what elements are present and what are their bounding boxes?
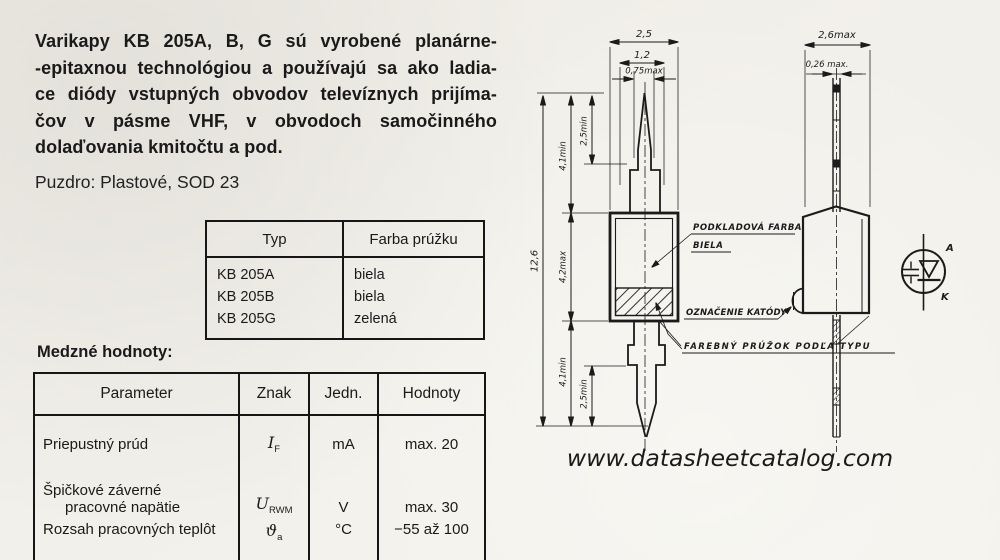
base-color-label-line1: PODKLADOVÁ FARBA: [693, 221, 802, 233]
dim-side-width-label: 2,6max: [818, 30, 856, 41]
table-row: Špičkové záverné pracovné napätie URWM V…: [34, 467, 485, 519]
anode-label: A: [945, 243, 954, 254]
type-table-header-typ: Typ: [206, 221, 343, 257]
limits-table: Parameter Znak Jedn. Hodnoty Priepustný …: [33, 372, 486, 560]
symbol-base: ϑ: [266, 521, 277, 540]
limits-title: Medzné hodnoty:: [37, 343, 173, 362]
front-view: 2,5 1,2 0,75max 12,6 4,1min 2,5min 4,2ma…: [530, 29, 679, 452]
color-cell: biela: [343, 257, 484, 286]
dim-side-lead-label: 0,26 max.: [806, 60, 849, 70]
parameter-cell: Priepustný prúd: [34, 415, 239, 467]
symbol-sub: F: [274, 444, 280, 455]
dim-body-width-label: 2,5: [636, 29, 652, 40]
type-cell: KB 205B: [206, 286, 343, 308]
value-cell: max. 30: [378, 467, 485, 519]
type-cell: KB 205G: [206, 308, 343, 339]
cathode-label: K: [941, 292, 950, 303]
dim-top-tip-label: 2,5min: [580, 116, 590, 146]
limits-header-parameter: Parameter: [34, 373, 239, 415]
table-row: Priepustný prúd IF mA max. 20: [34, 415, 485, 467]
intro-line: dolaďovania kmitočtu a pod.: [35, 134, 497, 161]
callouts: PODKLADOVÁ FARBA BIELA OZNAČENIE KATÓDY …: [652, 221, 895, 353]
intro-line: čov v pásme VHF, v obvodoch samočinného: [35, 108, 497, 135]
intro-line: Varikapy KB 205A, B, G sú vyrobené planá…: [35, 28, 497, 55]
table-row: KB 205G zelená: [206, 308, 484, 339]
symbol-base: U: [255, 494, 268, 513]
parameter-cell: Rozsah pracovných teplôt: [34, 519, 239, 560]
limits-header-znak: Znak: [239, 373, 309, 415]
intro-paragraph: Varikapy KB 205A, B, G sú vyrobené planá…: [35, 28, 497, 161]
limits-header-hodnoty: Hodnoty: [378, 373, 485, 415]
symbol-cell: URWM: [239, 467, 309, 519]
dim-top-lead-label: 4,1min: [559, 141, 569, 171]
symbol-cell: ϑa: [239, 519, 309, 560]
dim-collar-width-label: 1,2: [634, 50, 650, 61]
stripe-leader-right: [836, 316, 869, 345]
base-color-leader: [652, 234, 691, 267]
table-row: KB 205B biela: [206, 286, 484, 308]
stripe-label: FAREBNÝ PRÚŽOK PODĽA TYPU: [684, 340, 871, 352]
table-row: Rozsah pracovných teplôt ϑa °C −55 až 10…: [34, 519, 485, 560]
front-bottom-lead: [628, 321, 665, 437]
color-cell: zelená: [343, 308, 484, 339]
side-body-outline: [803, 207, 869, 314]
dim-bottom-lead-label: 4,1min: [559, 357, 569, 387]
intro-line: -epitaxnou technológiou a používajú sa a…: [35, 55, 497, 82]
watermark-url: www.datasheetcatalog.com: [555, 444, 905, 472]
package-line: Puzdro: Plastové, SOD 23: [35, 172, 239, 193]
type-table-header-farba: Farba prúžku: [343, 221, 484, 257]
limits-header-jedn: Jedn.: [309, 373, 378, 415]
value-cell: −55 až 100: [378, 519, 485, 560]
cathode-mark-label: OZNAČENIE KATÓDY: [686, 306, 787, 318]
type-cell: KB 205A: [206, 257, 343, 286]
varicap-symbol: A K: [902, 234, 954, 311]
dim-bottom-tip-label: 2,5min: [580, 379, 590, 409]
color-stripe-hatch: [616, 288, 673, 316]
intro-line: ce diódy vstupných obvodov televíznych p…: [35, 81, 497, 108]
type-table: Typ Farba prúžku KB 205A biela KB 205B b…: [205, 220, 485, 340]
dim-total-height-label: 12,6: [530, 250, 541, 272]
datasheet-page: Varikapy KB 205A, B, G sú vyrobené planá…: [0, 0, 1000, 560]
cathode-bump: [793, 289, 804, 314]
symbol-sub: RWM: [269, 505, 293, 516]
unit-cell: °C: [309, 519, 378, 560]
color-cell: biela: [343, 286, 484, 308]
symbol-sub: a: [277, 532, 282, 543]
parameter-line: pracovné napätie: [43, 499, 237, 516]
symbol-cell: IF: [239, 415, 309, 467]
parameter-line: Špičkové záverné: [43, 482, 237, 499]
value-cell: max. 20: [378, 415, 485, 467]
side-view: 2,6max 0,26 max.: [793, 30, 871, 452]
dim-body-height-label: 4,2max: [559, 250, 569, 283]
parameter-cell: Špičkové záverné pracovné napätie: [34, 467, 239, 519]
package-drawing: 2,5 1,2 0,75max 12,6 4,1min 2,5min 4,2ma…: [505, 0, 1000, 560]
base-color-label-line2: BIELA: [693, 241, 723, 251]
table-row: KB 205A biela: [206, 257, 484, 286]
unit-cell: V: [309, 467, 378, 519]
unit-cell: mA: [309, 415, 378, 467]
dim-lead-width-label: 0,75max: [625, 67, 663, 77]
